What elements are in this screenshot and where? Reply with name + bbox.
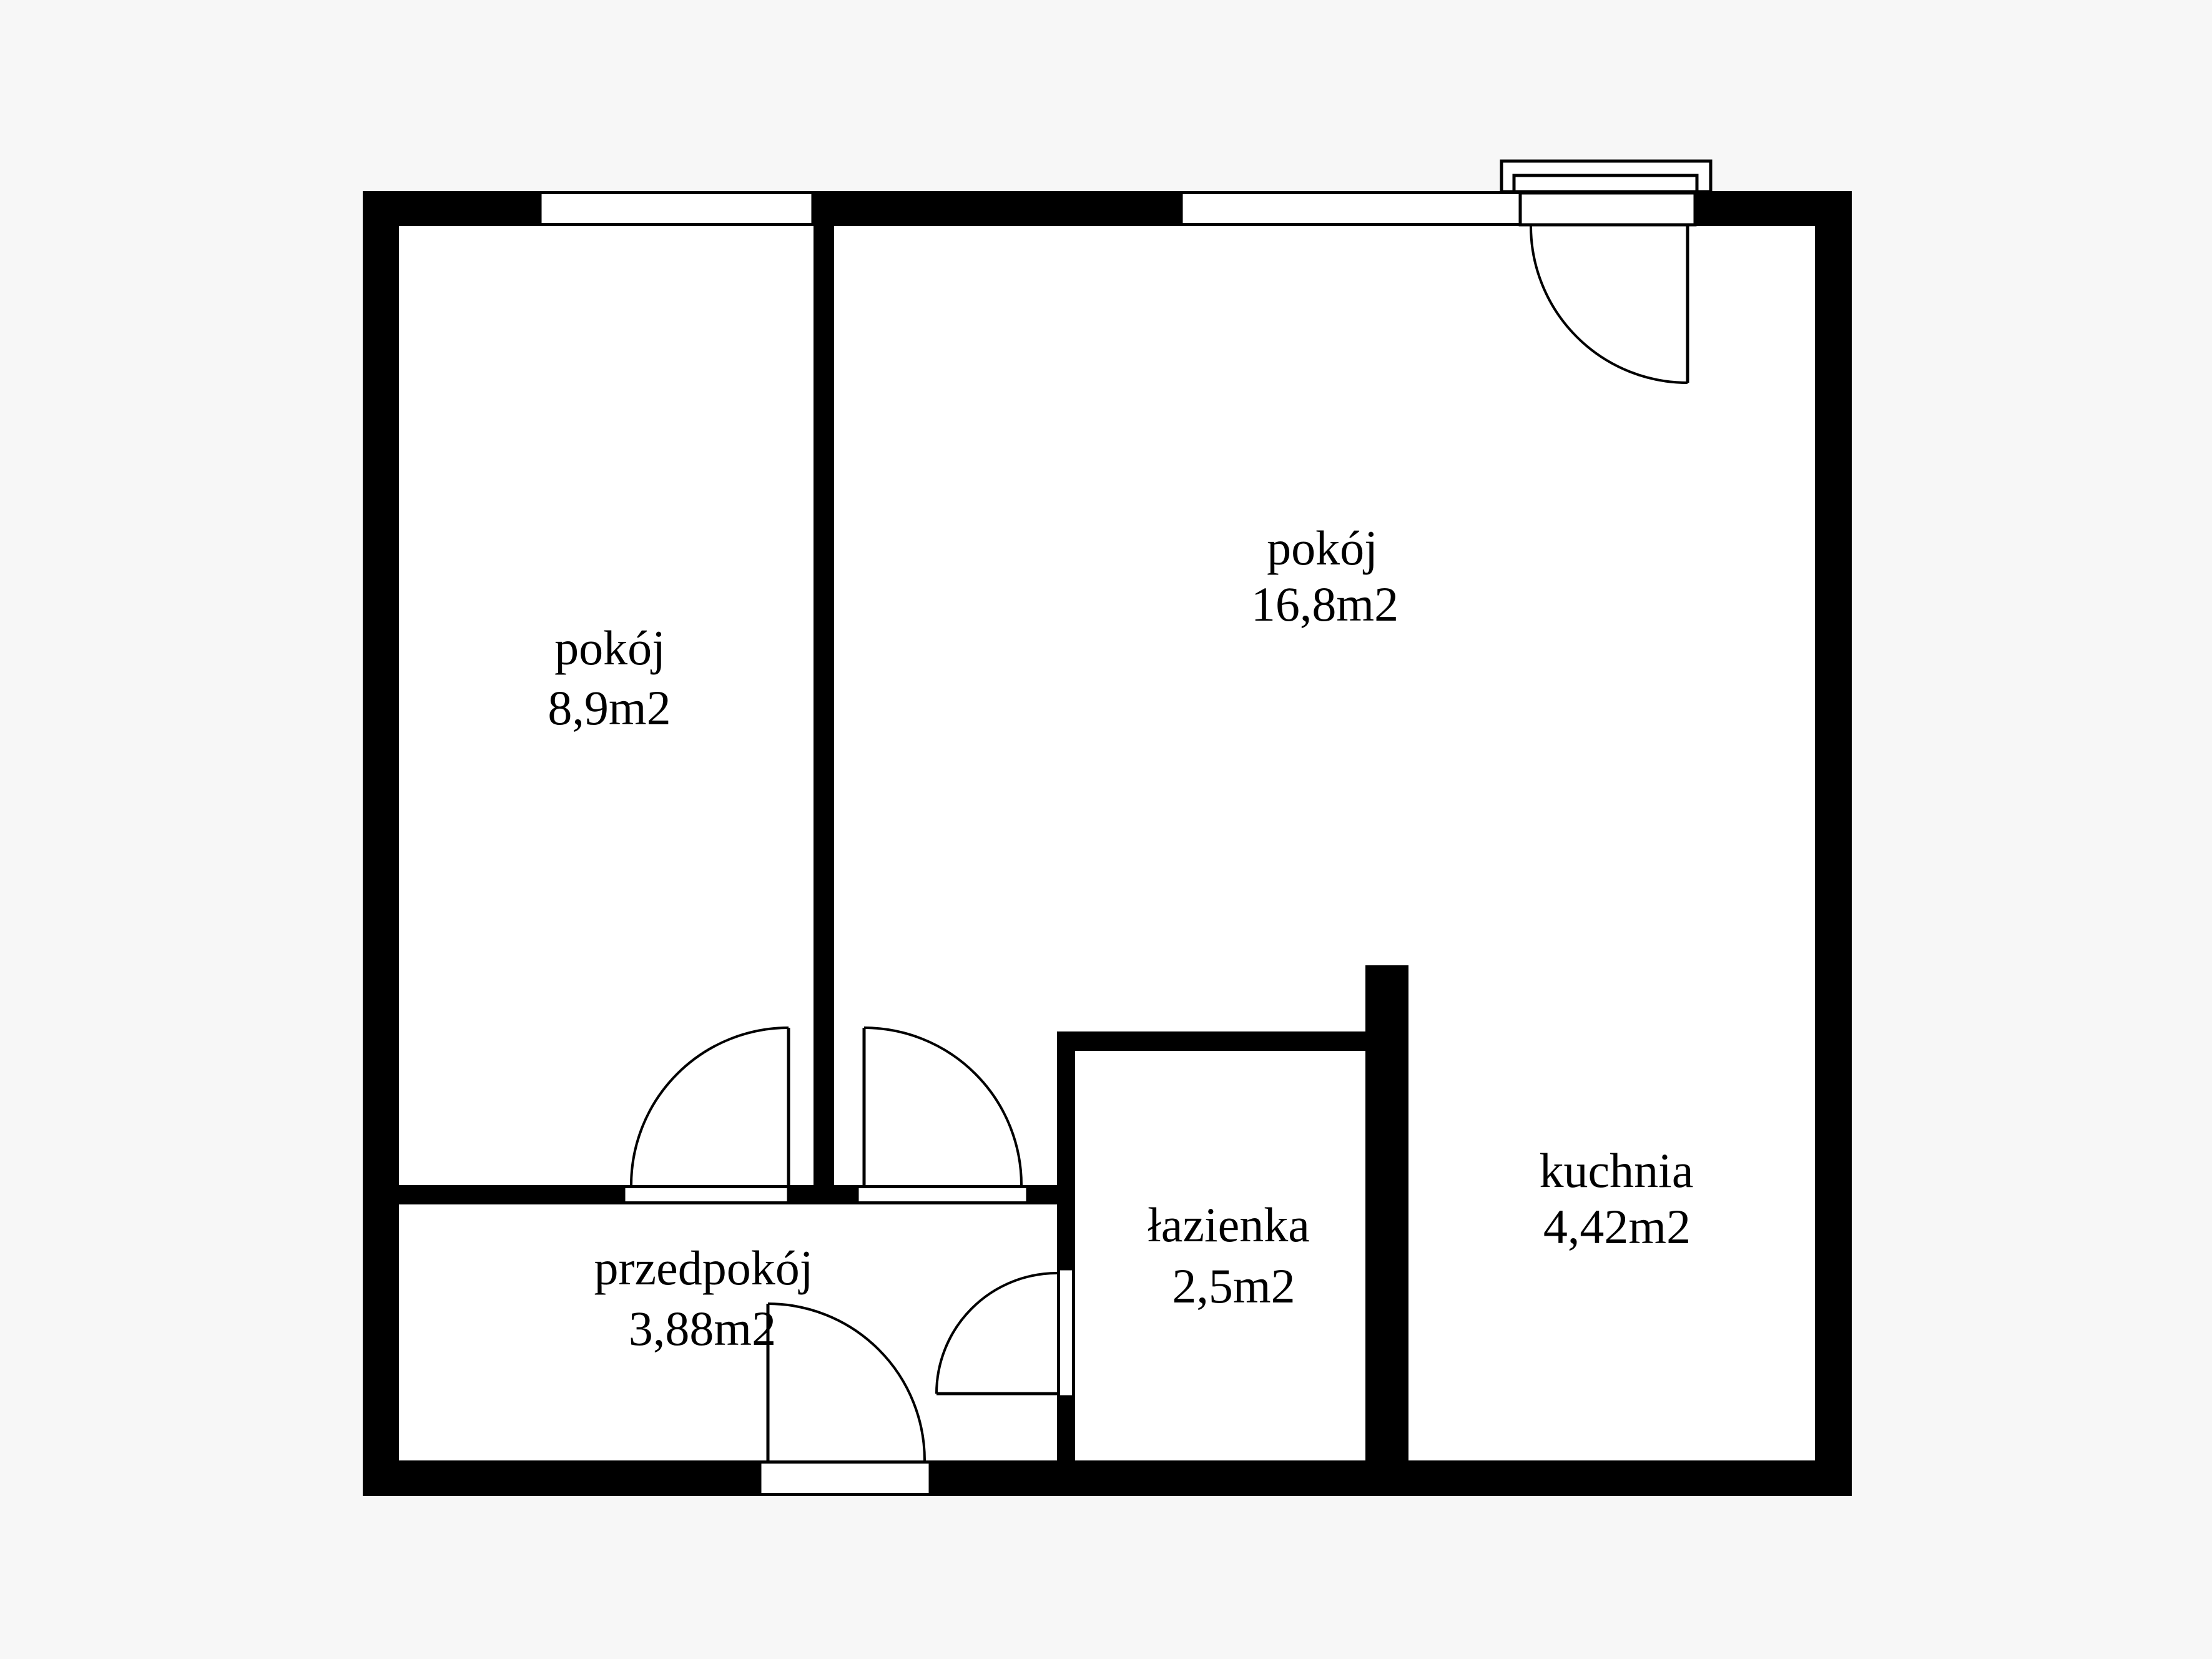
svg-text:przedpokój: przedpokój — [594, 1241, 814, 1295]
svg-text:16,8m2: 16,8m2 — [1251, 577, 1398, 631]
svg-text:pokój: pokój — [1267, 521, 1378, 575]
svg-text:kuchnia: kuchnia — [1540, 1143, 1694, 1198]
svg-text:8,9m2: 8,9m2 — [548, 681, 671, 735]
svg-text:4,42m2: 4,42m2 — [1543, 1199, 1691, 1254]
svg-text:3,88m2: 3,88m2 — [629, 1301, 776, 1356]
svg-text:łazienka: łazienka — [1148, 1198, 1310, 1252]
svg-text:2,5m2: 2,5m2 — [1172, 1259, 1295, 1313]
svg-text:pokój: pokój — [554, 621, 666, 675]
